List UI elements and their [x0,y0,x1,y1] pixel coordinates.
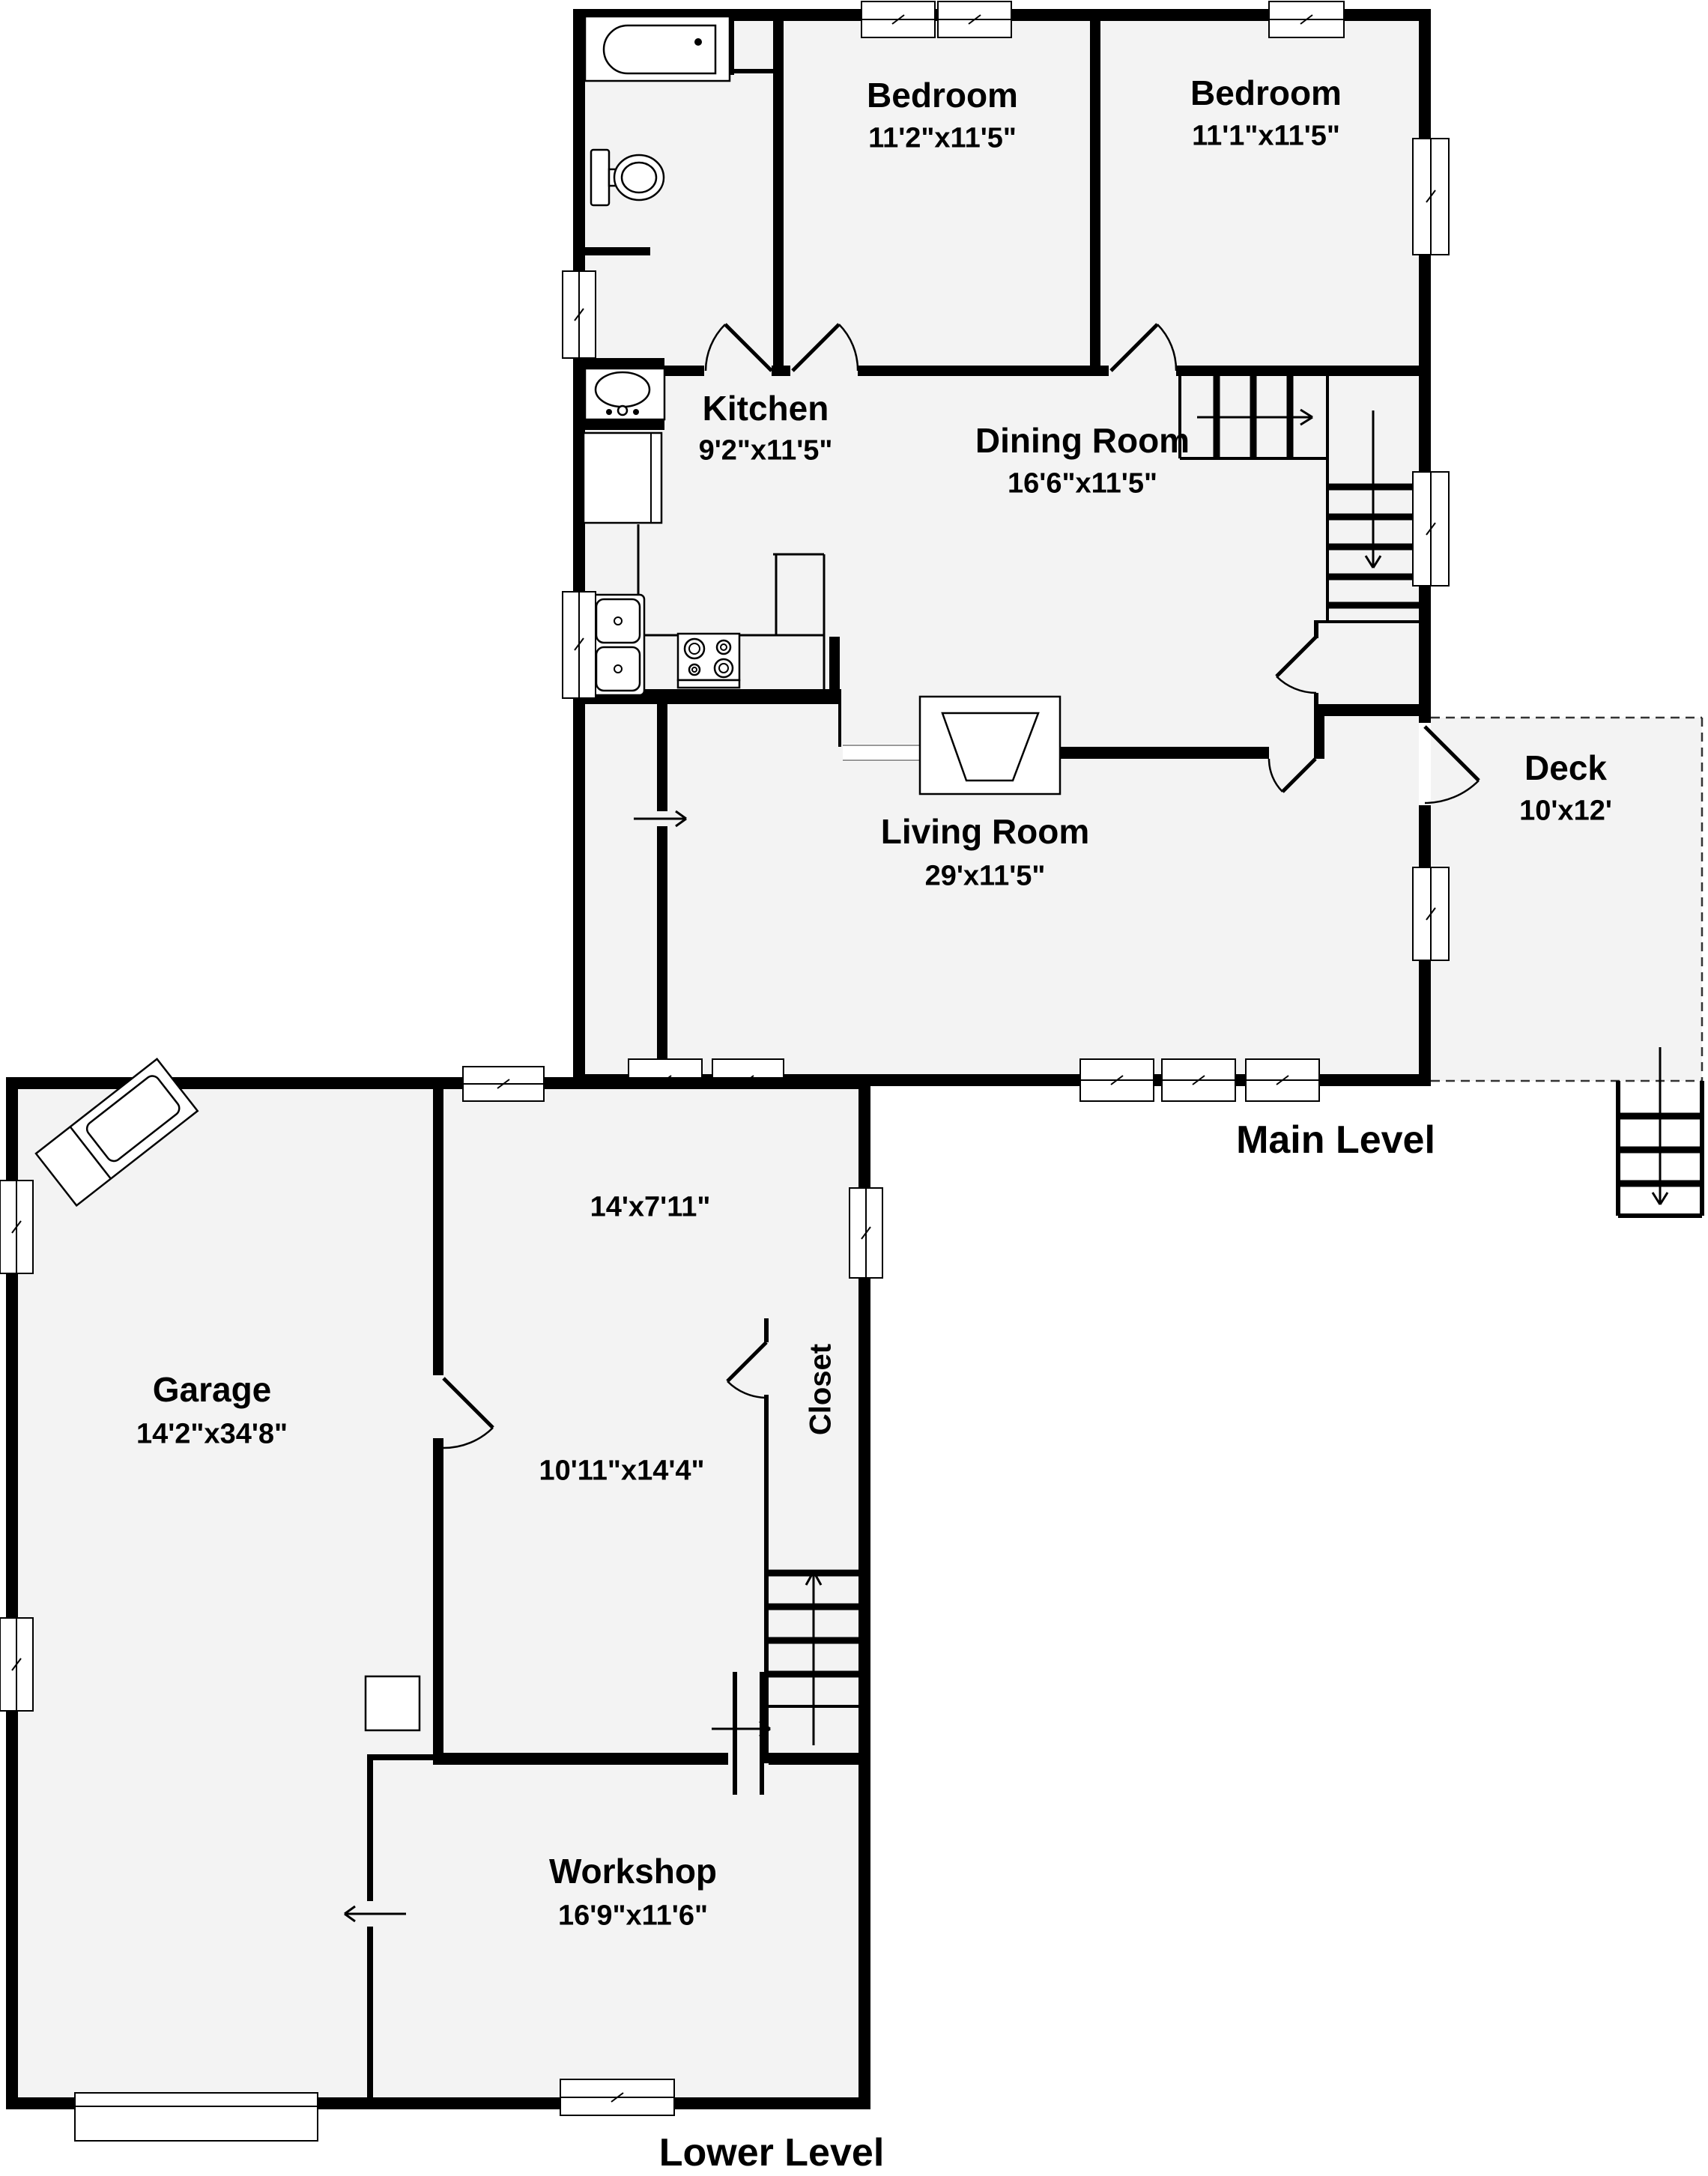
deck-dims: 10'x12' [1519,795,1612,828]
bathtub [585,16,730,81]
kitchen-label: Kitchen [703,388,829,428]
lower-top-window [463,1067,544,1101]
bedroom1-window-left [861,1,935,37]
bedroom2-top-window [1269,1,1344,37]
deck-sliding-door [1413,867,1449,960]
living-room-window-5 [1246,1059,1319,1101]
dining-living-opening [843,744,921,762]
garage-door [75,2093,318,2141]
bedroom1-label: Bedroom [867,75,1018,115]
garage-window-lower [0,1618,33,1711]
workshop-dims: 16'9"x11'6" [558,1900,708,1933]
garage-window-upper [0,1181,33,1273]
main-level-plan [563,1,1702,1216]
garage-dims: 14'2"x34'8" [136,1419,288,1451]
deck-label: Deck [1524,748,1607,788]
bedroom2-side-window [1413,139,1449,255]
stove [678,634,739,688]
fireplace [920,697,1060,794]
living-room-window-3 [1080,1059,1154,1101]
bedroom2-dims: 11'1"x11'5" [1192,121,1340,153]
living-room-window-4 [1162,1059,1235,1101]
room-lower-dims: 10'11"x14'4" [539,1455,704,1488]
floor-plan-canvas: Bedroom 11'2"x11'5" Bedroom 11'1"x11'5" … [0,0,1708,2176]
plan-drawing [0,0,1708,2176]
main-floor [585,21,1419,1074]
stair-landing-window [1413,472,1449,586]
dining-room-dims: 16'6"x11'5" [1008,468,1157,500]
toilet [591,150,664,205]
living-room-label: Living Room [881,811,1090,852]
lower-level-plan [0,1059,882,2141]
main-level-title: Main Level [1236,1118,1435,1163]
lower-level-title: Lower Level [659,2130,885,2175]
living-room-dims: 29'x11'5" [925,861,1046,893]
bedroom1-window-right [938,1,1011,37]
lower-right-window [850,1188,882,1278]
bathroom-window [563,271,596,358]
kitchen-dims: 9'2"x11'5" [699,435,833,467]
kitchen-sink [588,595,644,695]
bedroom2-label: Bedroom [1190,73,1342,113]
utility-post [366,1676,420,1730]
bathroom-sink-vanity [585,369,664,419]
garage-label: Garage [153,1369,272,1410]
refrigerator [584,433,661,523]
kitchen-window [563,592,596,698]
room-upper-dims: 14'x7'11" [590,1192,711,1224]
dining-room-label: Dining Room [975,420,1190,461]
workshop-label: Workshop [549,1851,717,1891]
workshop-window [560,2079,674,2115]
closet-label: Closet [805,1344,838,1435]
bedroom1-dims: 11'2"x11'5" [868,123,1017,155]
